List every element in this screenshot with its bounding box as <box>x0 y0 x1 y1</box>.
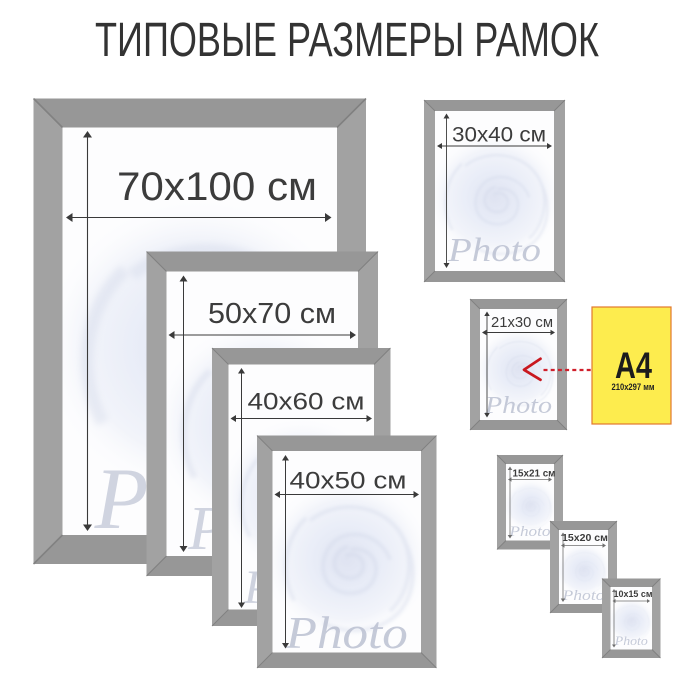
svg-text:40x60 см: 40x60 см <box>248 389 365 416</box>
svg-text:Photo: Photo <box>614 634 648 648</box>
svg-text:Photo: Photo <box>484 393 552 419</box>
svg-text:40x50 см: 40x50 см <box>290 468 407 495</box>
svg-text:50x70 см: 50x70 см <box>208 298 336 330</box>
svg-text:Photo: Photo <box>508 524 551 540</box>
svg-text:10x15 см: 10x15 см <box>614 589 653 600</box>
svg-text:Photo: Photo <box>447 232 541 269</box>
svg-text:Photo: Photo <box>561 588 605 604</box>
svg-text:70x100 см: 70x100 см <box>117 165 317 209</box>
svg-text:210x297 мм: 210x297 мм <box>612 382 655 392</box>
svg-text:A4: A4 <box>615 345 652 386</box>
svg-text:15x21 см: 15x21 см <box>513 468 556 480</box>
svg-text:15x20 см: 15x20 см <box>562 532 608 544</box>
svg-text:ТИПОВЫЕ РАЗМЕРЫ РАМОК: ТИПОВЫЕ РАЗМЕРЫ РАМОК <box>95 14 599 67</box>
svg-text:21x30 см: 21x30 см <box>491 314 553 331</box>
svg-text:Photo: Photo <box>285 607 408 658</box>
svg-text:30x40 см: 30x40 см <box>452 124 546 147</box>
